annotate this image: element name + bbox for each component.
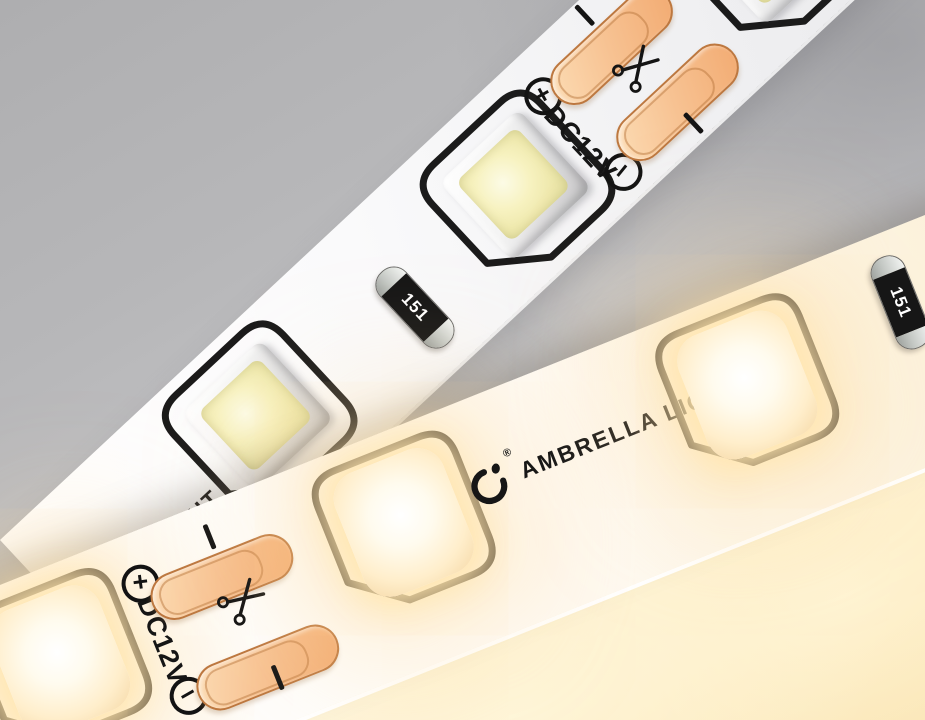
cut-line-mark [202,524,216,550]
resistor-151: 151 [866,250,925,354]
led-module-warm-3 [645,283,850,488]
led-module-cool-2 [406,76,629,299]
led-module-cool-3 [659,0,882,63]
resistor-151: 151 [368,259,461,355]
cut-line-mark [574,4,595,26]
scene-led-strips: ® AMBRELLA LIGHT 151 + DC12V [0,0,925,720]
solder-pad-detail [200,635,314,710]
resistor-code: 151 [873,267,925,337]
solder-pad [189,617,346,717]
